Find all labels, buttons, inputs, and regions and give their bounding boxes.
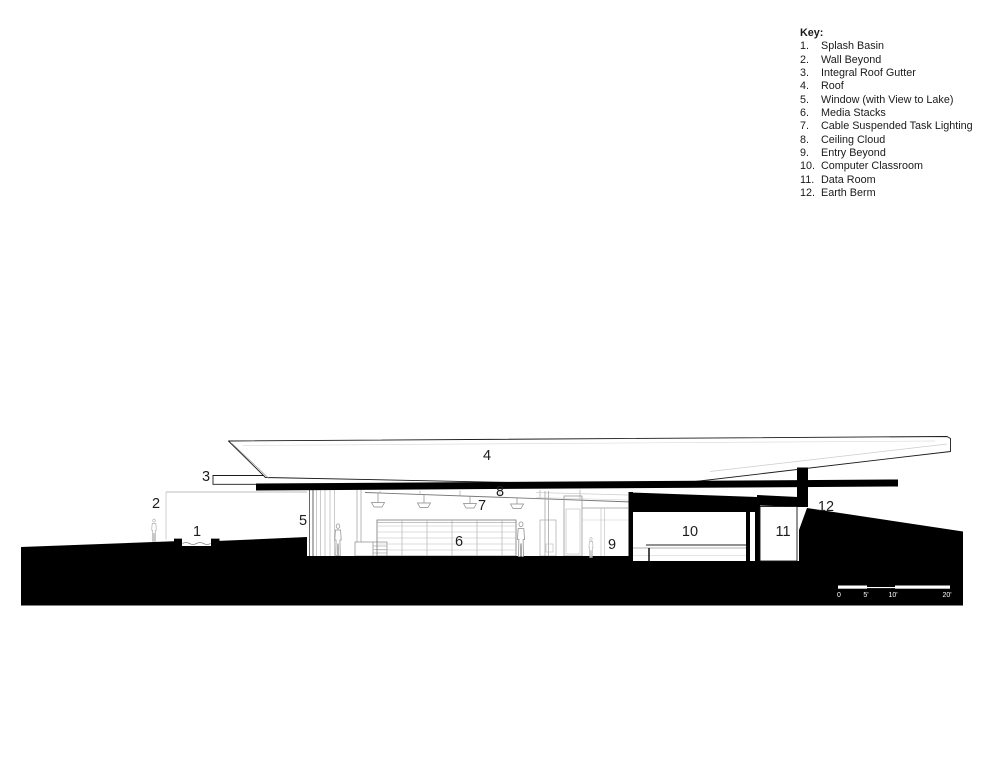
person-figure xyxy=(589,537,593,557)
callout-earth-berm: 12 xyxy=(818,500,834,515)
key-item-number: 1. xyxy=(800,40,821,53)
pendant-light xyxy=(418,495,431,508)
pendant-light xyxy=(464,496,477,508)
callout-roof: 4 xyxy=(483,449,491,464)
key-item-label: Earth Berm xyxy=(821,187,996,200)
callout-computer-classroom: 10 xyxy=(682,525,698,540)
person-figure xyxy=(335,524,341,556)
black-poche xyxy=(21,468,963,606)
key-item-number: 7. xyxy=(800,120,821,133)
media-stacks xyxy=(377,520,516,556)
roof-assembly xyxy=(213,437,951,486)
key-item-splash-basin: 1. Splash Basin xyxy=(800,40,996,53)
key-item-data-room: 11. Data Room xyxy=(800,174,996,187)
key-item-label: Integral Roof Gutter xyxy=(821,67,996,80)
roof-plane xyxy=(229,437,951,486)
key-item-roof: 4. Roof xyxy=(800,80,996,93)
callout-ceiling-cloud: 8 xyxy=(496,485,504,500)
key-item-computer-classroom: 10. Computer Classroom xyxy=(800,160,996,173)
key-item-label: Wall Beyond xyxy=(821,54,996,67)
key-item-number: 4. xyxy=(800,80,821,93)
key-item-number: 10. xyxy=(800,160,821,173)
callout-wall-beyond: 2 xyxy=(152,497,160,512)
key-item-roof-gutter: 3. Integral Roof Gutter xyxy=(800,67,996,80)
classroom-roof-band xyxy=(630,493,757,513)
window-mullions xyxy=(310,490,314,556)
person-figure xyxy=(152,519,156,541)
key-item-number: 3. xyxy=(800,67,821,80)
callout-media-stacks: 6 xyxy=(455,535,463,550)
callout-task-lighting: 7 xyxy=(478,499,486,514)
key-item-number: 11. xyxy=(800,174,821,187)
key-item-ceiling-cloud: 8. Ceiling Cloud xyxy=(800,134,996,147)
pendant-light xyxy=(511,498,524,509)
key-item-window: 5. Window (with View to Lake) xyxy=(800,94,996,107)
pendant-light xyxy=(372,493,385,507)
key-item-label: Splash Basin xyxy=(821,40,996,53)
callout-data-room: 11 xyxy=(775,525,790,540)
scale-bar-label-5: 5' xyxy=(863,592,868,599)
key-item-label: Cable Suspended Task Lighting xyxy=(821,120,996,133)
window-frame-lines xyxy=(317,490,335,556)
callout-entry-beyond: 9 xyxy=(608,538,616,553)
callout-splash-basin: 1 xyxy=(193,525,201,540)
key-title: Key: xyxy=(800,27,996,40)
key-item-number: 8. xyxy=(800,134,821,147)
scale-bar-label-10: 10' xyxy=(888,592,897,599)
key-panel: Key: 1. Splash Basin 2. Wall Beyond 3. I… xyxy=(800,27,996,200)
key-item-number: 5. xyxy=(800,94,821,107)
key-item-media-stacks: 6. Media Stacks xyxy=(800,107,996,120)
key-item-number: 2. xyxy=(800,54,821,67)
column-lines xyxy=(357,490,361,542)
callout-window: 5 xyxy=(299,514,307,529)
scale-bar-label-0: 0 xyxy=(837,592,841,599)
architectural-section-sheet: 1 2 3 4 5 6 7 8 9 10 11 12 0 5' 10' 20' … xyxy=(0,0,1000,773)
key-item-label: Media Stacks xyxy=(821,107,996,120)
classroom-wall xyxy=(746,512,750,561)
computer-classroom-room xyxy=(633,545,746,561)
splash-basin-waterline xyxy=(183,543,211,545)
key-item-wall-beyond: 2. Wall Beyond xyxy=(800,54,996,67)
key-item-label: Window (with View to Lake) xyxy=(821,94,996,107)
scale-bar-label-20: 20' xyxy=(942,592,951,599)
key-item-label: Computer Classroom xyxy=(821,160,996,173)
key-item-label: Roof xyxy=(821,80,996,93)
callout-roof-gutter: 3 xyxy=(202,470,210,485)
key-item-number: 6. xyxy=(800,107,821,120)
data-room-wall xyxy=(755,505,760,561)
key-item-label: Ceiling Cloud xyxy=(821,134,996,147)
key-item-label: Data Room xyxy=(821,174,996,187)
key-item-label: Entry Beyond xyxy=(821,147,996,160)
key-item-entry-beyond: 9. Entry Beyond xyxy=(800,147,996,160)
key-item-task-lighting: 7. Cable Suspended Task Lighting xyxy=(800,120,996,133)
key-item-earth-berm: 12. Earth Berm xyxy=(800,187,996,200)
key-item-number: 9. xyxy=(800,147,821,160)
person-figure xyxy=(518,522,525,557)
parapet xyxy=(797,468,808,508)
key-item-number: 12. xyxy=(800,187,821,200)
